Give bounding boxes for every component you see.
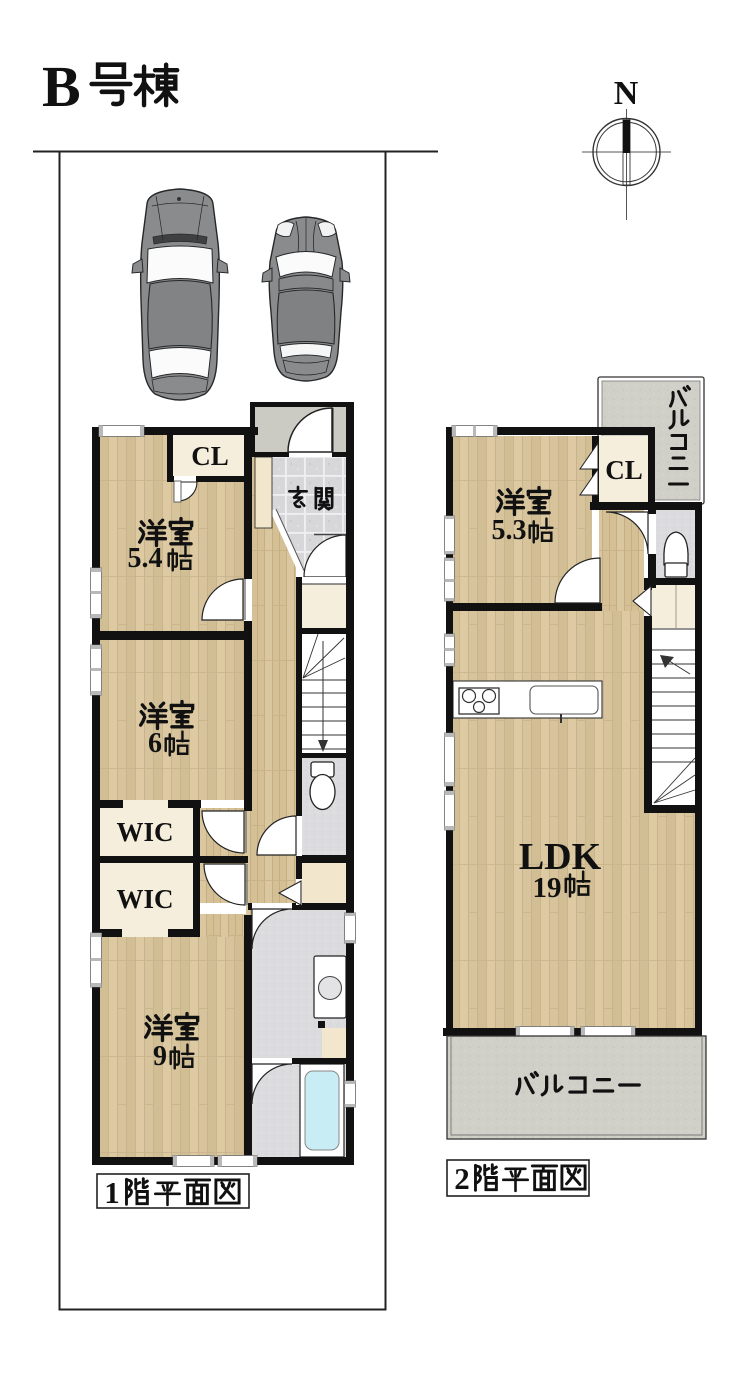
svg-text:6: 6: [148, 728, 162, 759]
svg-text:CL: CL: [605, 455, 643, 485]
svg-text:N: N: [614, 75, 639, 112]
svg-text:19: 19: [533, 872, 562, 904]
svg-text:2: 2: [454, 1161, 470, 1196]
svg-text:9: 9: [153, 1041, 167, 1072]
svg-text:WIC: WIC: [116, 884, 173, 914]
svg-text:B: B: [42, 54, 81, 119]
svg-text:5.3: 5.3: [492, 515, 527, 546]
svg-text:CL: CL: [191, 441, 229, 471]
svg-text:5.4: 5.4: [128, 543, 163, 574]
svg-text:WIC: WIC: [116, 817, 173, 847]
svg-text:1: 1: [104, 1175, 120, 1210]
